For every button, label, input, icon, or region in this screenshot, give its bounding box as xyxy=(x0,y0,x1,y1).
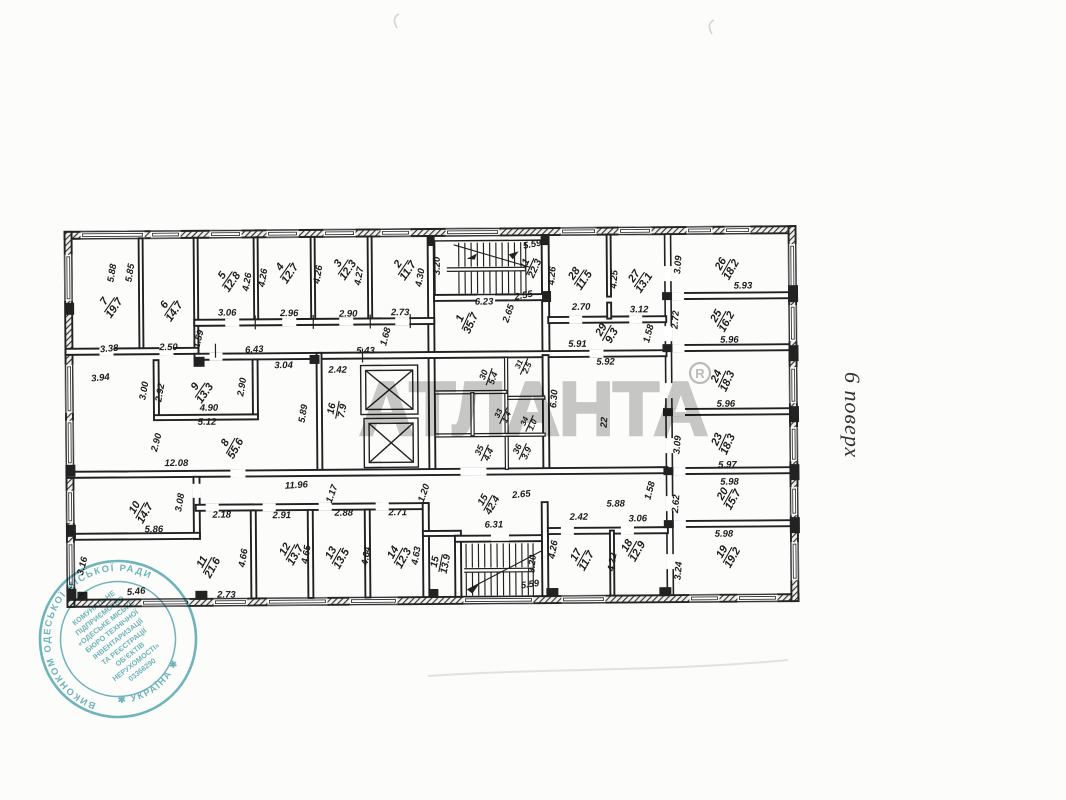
svg-text:5.86: 5.86 xyxy=(145,524,164,535)
svg-text:4.30: 4.30 xyxy=(413,267,427,289)
svg-text:2.88: 2.88 xyxy=(333,508,353,519)
svg-text:2.90: 2.90 xyxy=(235,376,249,398)
svg-text:5.93: 5.93 xyxy=(734,280,753,291)
svg-text:6.31: 6.31 xyxy=(485,519,504,530)
svg-text:2.65: 2.65 xyxy=(500,302,517,325)
svg-text:2.90: 2.90 xyxy=(338,309,358,320)
svg-text:4.22: 4.22 xyxy=(606,551,620,573)
svg-text:4.27: 4.27 xyxy=(352,265,366,287)
svg-text:2.70: 2.70 xyxy=(571,302,591,313)
svg-text:2.65: 2.65 xyxy=(511,488,532,501)
svg-text:1.68: 1.68 xyxy=(378,326,393,347)
svg-text:5.43: 5.43 xyxy=(356,345,375,356)
svg-text:5.59: 5.59 xyxy=(522,238,543,252)
svg-text:3.12: 3.12 xyxy=(630,304,649,315)
svg-text:3.20: 3.20 xyxy=(526,554,538,574)
svg-text:1.58: 1.58 xyxy=(641,323,656,344)
svg-text:5.96: 5.96 xyxy=(717,399,736,410)
svg-text:1.17: 1.17 xyxy=(324,483,341,505)
svg-text:3.04: 3.04 xyxy=(274,360,293,371)
svg-text:4.25: 4.25 xyxy=(608,269,621,290)
svg-text:11.96: 11.96 xyxy=(285,479,309,491)
svg-text:4.26: 4.26 xyxy=(546,539,560,561)
svg-text:3.24: 3.24 xyxy=(673,560,685,580)
svg-text:2.18: 2.18 xyxy=(211,510,231,521)
svg-text:2.96: 2.96 xyxy=(279,308,299,319)
svg-text:4.26: 4.26 xyxy=(256,267,270,289)
svg-text:19.7: 19.7 xyxy=(103,295,126,320)
svg-text:3.08: 3.08 xyxy=(173,492,187,513)
svg-text:2.71: 2.71 xyxy=(387,507,407,518)
svg-text:3.20: 3.20 xyxy=(432,256,443,275)
svg-text:3.06: 3.06 xyxy=(629,513,648,524)
svg-text:14.7: 14.7 xyxy=(163,299,186,324)
svg-text:2.42: 2.42 xyxy=(568,512,588,523)
svg-text:6.23: 6.23 xyxy=(475,297,494,308)
svg-text:12.08: 12.08 xyxy=(164,458,189,469)
svg-text:1.20: 1.20 xyxy=(416,482,433,504)
svg-text:35.7: 35.7 xyxy=(461,310,481,335)
svg-text:4.26: 4.26 xyxy=(311,264,325,286)
svg-text:4.63: 4.63 xyxy=(410,545,424,567)
svg-text:4.90: 4.90 xyxy=(199,403,219,414)
svg-text:2.72: 2.72 xyxy=(669,309,682,330)
svg-text:5.97: 5.97 xyxy=(718,460,737,471)
svg-text:4.26: 4.26 xyxy=(546,265,559,286)
svg-text:4.26: 4.26 xyxy=(240,271,254,293)
svg-text:12.7: 12.7 xyxy=(279,261,302,286)
svg-text:3.00: 3.00 xyxy=(137,380,151,401)
svg-text:АТЛАНТА: АТЛАНТА xyxy=(359,367,707,452)
svg-text:3.38: 3.38 xyxy=(100,343,120,356)
svg-text:7.9: 7.9 xyxy=(336,403,350,419)
svg-text:3.09: 3.09 xyxy=(672,254,684,274)
svg-text:5.88: 5.88 xyxy=(105,262,119,283)
svg-text:5.91: 5.91 xyxy=(568,339,587,350)
svg-text:2.62: 2.62 xyxy=(670,493,683,514)
svg-text:5.85: 5.85 xyxy=(123,262,137,283)
svg-text:2.90: 2.90 xyxy=(149,431,165,453)
svg-text:2.50: 2.50 xyxy=(158,342,178,353)
svg-text:2.92: 2.92 xyxy=(153,382,167,404)
svg-text:6 поверх: 6 поверх xyxy=(840,372,865,458)
svg-text:5.59: 5.59 xyxy=(520,578,541,592)
svg-text:5.89: 5.89 xyxy=(297,403,311,424)
svg-text:5.98: 5.98 xyxy=(720,477,739,488)
svg-text:2.91: 2.91 xyxy=(271,510,291,521)
svg-text:4.64: 4.64 xyxy=(360,545,374,567)
svg-text:2.42: 2.42 xyxy=(327,365,347,376)
svg-text:1.58: 1.58 xyxy=(643,480,658,501)
svg-text:R: R xyxy=(695,366,705,381)
svg-text:5.12: 5.12 xyxy=(198,417,217,428)
svg-text:5.96: 5.96 xyxy=(720,335,739,346)
svg-text:13.9: 13.9 xyxy=(439,553,454,575)
svg-text:4.66: 4.66 xyxy=(237,547,251,569)
svg-text:2.73: 2.73 xyxy=(390,307,410,318)
svg-text:55.6: 55.6 xyxy=(225,436,246,461)
svg-text:2.73: 2.73 xyxy=(216,590,236,601)
svg-text:3.06: 3.06 xyxy=(218,308,237,319)
svg-text:5.88: 5.88 xyxy=(606,498,625,509)
svg-text:3.94: 3.94 xyxy=(91,372,111,385)
svg-text:6.43: 6.43 xyxy=(245,344,265,356)
svg-text:5.98: 5.98 xyxy=(715,529,734,540)
